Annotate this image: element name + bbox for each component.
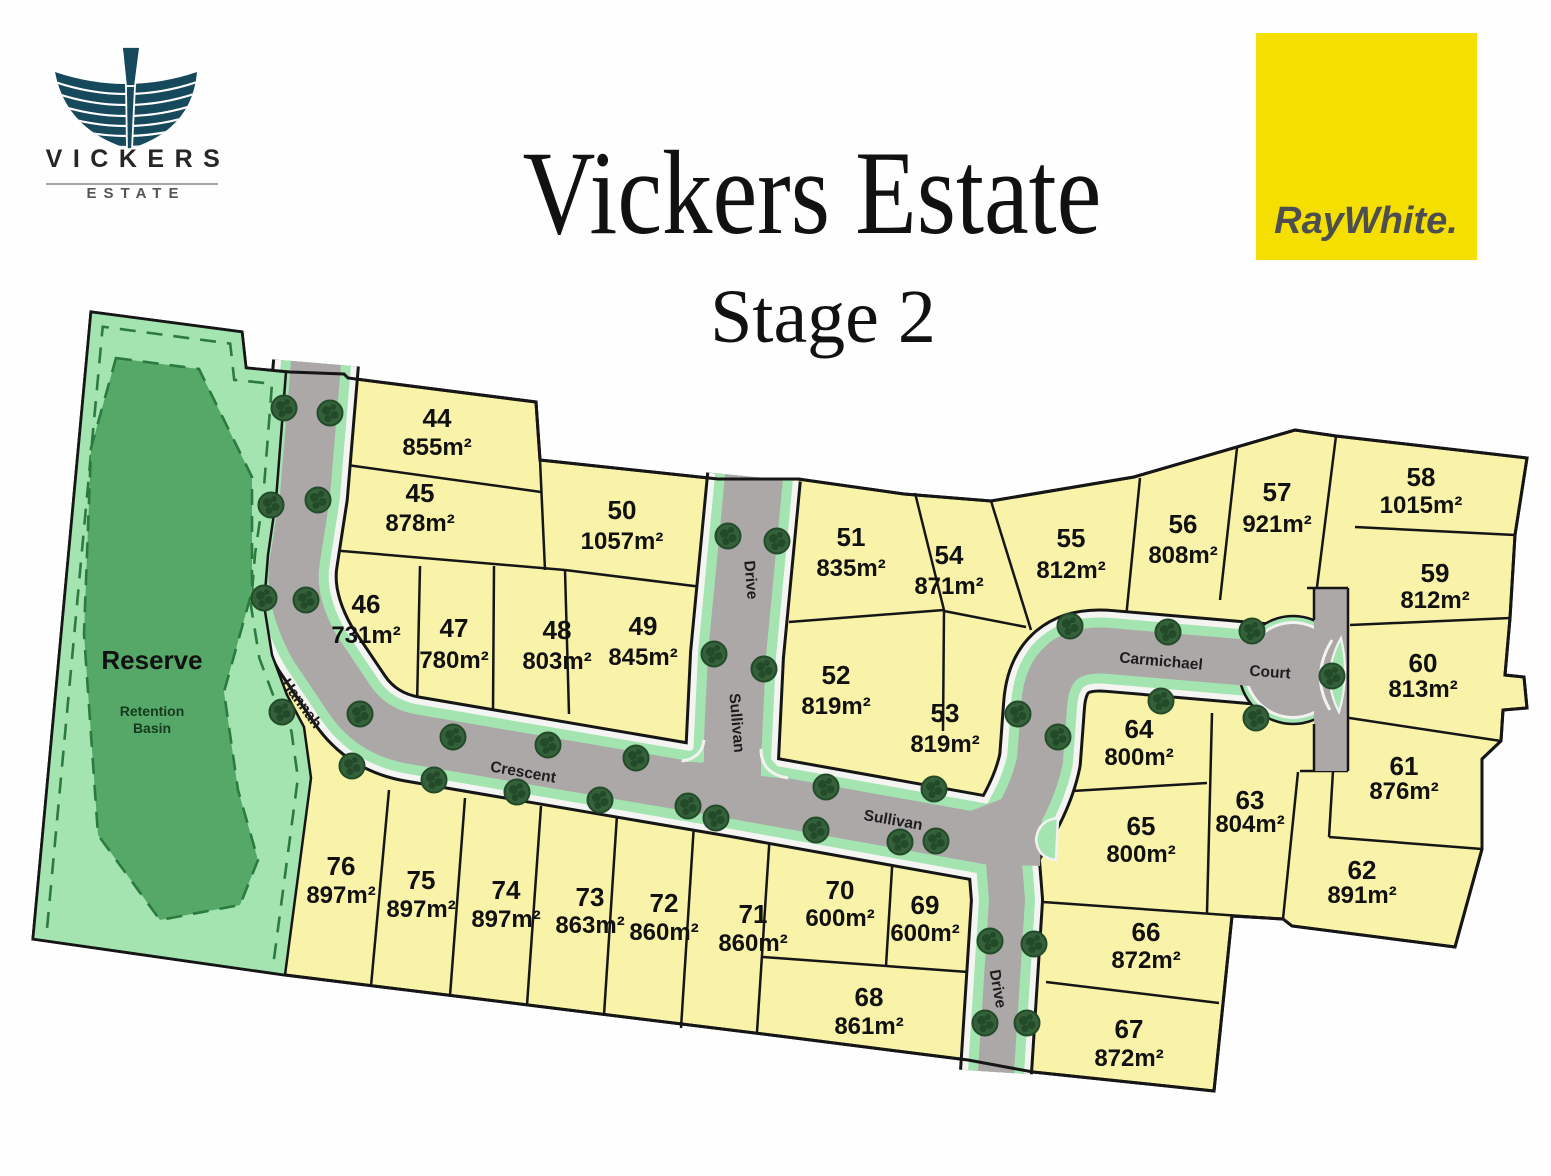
svg-text:Stage 2: Stage 2 [710,275,936,359]
svg-text:55: 55 [1057,523,1086,553]
svg-text:53: 53 [931,698,960,728]
svg-text:835m²: 835m² [816,555,885,582]
svg-text:1057m²: 1057m² [581,528,664,555]
svg-text:49: 49 [629,611,658,641]
svg-text:Vickers Estate: Vickers Estate [523,126,1102,259]
svg-text:61: 61 [1390,751,1419,781]
svg-text:58: 58 [1407,462,1436,492]
svg-text:59: 59 [1421,558,1450,588]
svg-text:57: 57 [1263,477,1292,507]
svg-text:67: 67 [1115,1014,1144,1044]
svg-text:812m²: 812m² [1400,587,1469,614]
svg-text:731m²: 731m² [331,622,400,649]
svg-text:871m²: 871m² [914,573,983,600]
svg-text:845m²: 845m² [608,644,677,671]
svg-text:876m²: 876m² [1369,778,1438,805]
svg-text:46: 46 [352,589,381,619]
svg-text:VICKERS: VICKERS [46,145,231,173]
svg-text:Drive: Drive [740,560,760,600]
svg-text:70: 70 [826,875,855,905]
svg-text:921m²: 921m² [1242,511,1311,538]
svg-text:62: 62 [1348,855,1377,885]
svg-text:48: 48 [543,615,572,645]
svg-text:878m²: 878m² [385,510,454,537]
svg-text:819m²: 819m² [910,731,979,758]
svg-text:56: 56 [1169,509,1198,539]
svg-text:819m²: 819m² [801,693,870,720]
svg-text:64: 64 [1125,714,1154,744]
svg-text:803m²: 803m² [522,648,591,675]
svg-text:51: 51 [837,522,866,552]
svg-text:54: 54 [935,540,964,570]
svg-text:44: 44 [423,403,452,433]
svg-text:813m²: 813m² [1388,676,1457,703]
svg-text:804m²: 804m² [1215,811,1284,838]
svg-text:72: 72 [650,888,679,918]
svg-text:50: 50 [608,495,637,525]
svg-text:Retention: Retention [120,703,185,719]
svg-text:872m²: 872m² [1111,947,1180,974]
svg-text:860m²: 860m² [718,930,787,957]
svg-text:RayWhite.: RayWhite. [1274,200,1458,242]
svg-text:60: 60 [1409,648,1438,678]
svg-text:891m²: 891m² [1327,882,1396,909]
svg-text:Reserve: Reserve [101,645,202,675]
svg-text:66: 66 [1132,917,1161,947]
svg-text:76: 76 [327,851,356,881]
svg-text:73: 73 [576,882,605,912]
svg-text:800m²: 800m² [1104,744,1173,771]
svg-text:Court: Court [1249,663,1291,683]
svg-text:812m²: 812m² [1036,557,1105,584]
svg-text:69: 69 [911,890,940,920]
svg-text:780m²: 780m² [419,647,488,674]
svg-text:600m²: 600m² [890,920,959,947]
svg-text:Basin: Basin [133,720,171,736]
svg-text:47: 47 [440,613,469,643]
svg-text:74: 74 [492,875,521,905]
svg-text:897m²: 897m² [386,896,455,923]
svg-text:800m²: 800m² [1106,841,1175,868]
svg-text:75: 75 [407,865,436,895]
svg-text:855m²: 855m² [402,434,471,461]
svg-text:897m²: 897m² [471,906,540,933]
svg-text:45: 45 [406,478,435,508]
svg-text:808m²: 808m² [1148,542,1217,569]
svg-text:863m²: 863m² [555,912,624,939]
svg-text:71: 71 [739,899,768,929]
svg-text:872m²: 872m² [1094,1045,1163,1072]
svg-text:ESTATE: ESTATE [87,185,186,202]
svg-text:860m²: 860m² [629,919,698,946]
svg-text:600m²: 600m² [805,905,874,932]
svg-text:861m²: 861m² [834,1013,903,1040]
svg-text:68: 68 [855,982,884,1012]
svg-text:1015m²: 1015m² [1380,492,1463,519]
svg-text:897m²: 897m² [306,882,375,909]
svg-text:52: 52 [822,660,851,690]
svg-text:65: 65 [1127,811,1156,841]
